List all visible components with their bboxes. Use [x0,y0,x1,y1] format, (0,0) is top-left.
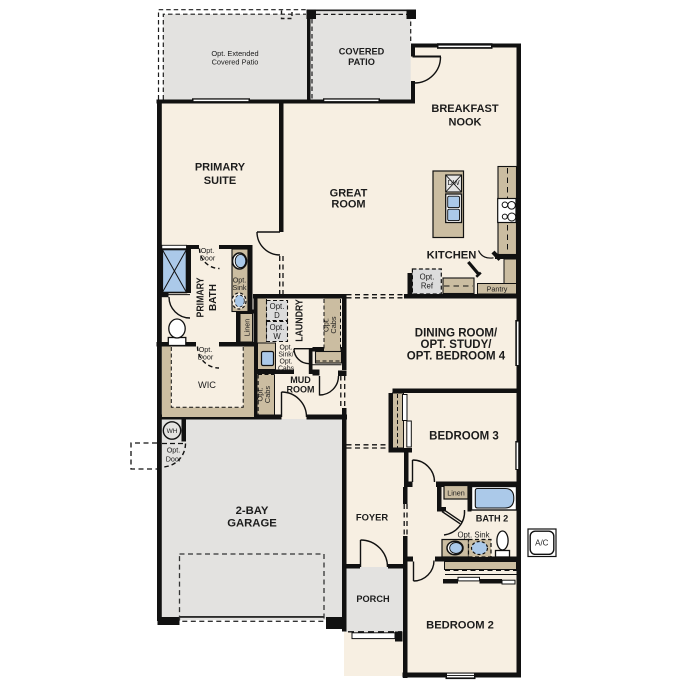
svg-text:Cabs: Cabs [278,365,295,372]
svg-text:GREAT: GREAT [330,187,368,199]
svg-text:Door: Door [198,353,214,362]
svg-text:PRIMARY: PRIMARY [196,277,207,317]
svg-text:Linen: Linen [447,488,465,497]
svg-text:Sink: Sink [233,283,247,292]
svg-text:Pantry: Pantry [487,285,508,294]
svg-text:BATH 2: BATH 2 [476,514,509,524]
svg-text:Opt.: Opt. [420,273,435,282]
svg-text:BATH: BATH [208,284,219,311]
svg-text:PATIO: PATIO [348,57,375,67]
svg-text:FOYER: FOYER [356,512,389,523]
svg-text:PORCH: PORCH [356,594,390,604]
svg-text:BEDROOM 2: BEDROOM 2 [426,620,494,632]
svg-text:BEDROOM 3: BEDROOM 3 [429,431,499,443]
svg-text:GARAGE: GARAGE [227,518,277,530]
svg-text:Cabs: Cabs [329,316,338,334]
svg-text:Cabs: Cabs [263,386,272,404]
svg-text:ROOM: ROOM [331,199,365,211]
svg-text:Ref: Ref [421,282,434,291]
svg-text:Opt. Sink: Opt. Sink [457,531,489,540]
svg-text:MUD: MUD [290,375,311,385]
svg-text:KITCHEN: KITCHEN [427,249,477,261]
svg-text:BREAKFAST: BREAKFAST [431,103,499,115]
svg-text:Sink/: Sink/ [278,352,293,359]
svg-text:Door: Door [166,455,182,464]
svg-text:DINING ROOM/: DINING ROOM/ [415,328,498,340]
svg-text:LAUNDRY: LAUNDRY [295,299,306,342]
svg-text:Opt.: Opt. [270,323,285,332]
svg-text:ROOM: ROOM [287,385,315,395]
svg-text:Door: Door [200,254,216,263]
svg-text:SUITE: SUITE [204,175,236,187]
svg-text:OPT. STUDY/: OPT. STUDY/ [421,339,493,351]
svg-text:Covered Patio: Covered Patio [212,57,259,66]
svg-text:PRIMARY: PRIMARY [195,161,246,173]
svg-text:W: W [273,332,281,341]
svg-text:A/C: A/C [535,539,549,548]
svg-text:DW: DW [448,178,460,187]
svg-text:Opt.: Opt. [270,302,285,311]
svg-text:Linen: Linen [243,319,252,337]
svg-text:D: D [274,311,280,320]
svg-text:WIC: WIC [198,380,216,390]
svg-text:COVERED: COVERED [339,47,385,57]
svg-text:WH: WH [167,428,178,435]
svg-text:Opt.: Opt. [167,446,181,455]
svg-text:Opt.: Opt. [279,345,292,352]
svg-text:NOOK: NOOK [449,117,482,129]
svg-text:2-BAY: 2-BAY [236,505,269,517]
svg-text:OPT. BEDROOM 4: OPT. BEDROOM 4 [407,351,506,363]
